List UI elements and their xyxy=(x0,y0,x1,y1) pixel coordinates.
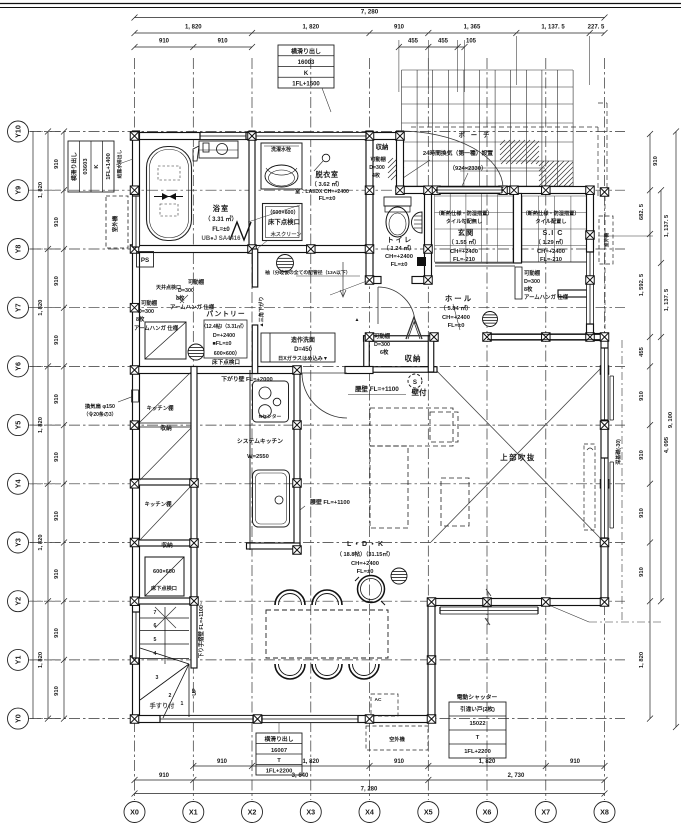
svg-text:壁付: 壁付 xyxy=(412,387,427,397)
svg-text:空外機: 空外機 xyxy=(389,735,405,743)
svg-text:日Xガラスはめ込み▼: 日Xガラスはめ込み▼ xyxy=(278,354,328,362)
svg-text:Y1: Y1 xyxy=(14,656,23,665)
svg-text:5: 5 xyxy=(154,637,157,643)
svg-text:7, 280: 7, 280 xyxy=(361,9,379,16)
svg-text:AC: AC xyxy=(375,697,382,703)
svg-text:キッチン棚: キッチン棚 xyxy=(145,500,173,508)
svg-text:造作洗面: 造作洗面 xyxy=(291,336,315,344)
svg-text:16007: 16007 xyxy=(271,748,287,754)
svg-text:Y7: Y7 xyxy=(14,303,23,312)
svg-text:X3: X3 xyxy=(306,808,315,817)
svg-text:1, 820: 1, 820 xyxy=(639,652,645,668)
svg-text:（924×2330）: （924×2330） xyxy=(449,164,487,172)
svg-text:（ 5.84 ㎡）: （ 5.84 ㎡） xyxy=(440,304,472,312)
svg-text:脱衣室: 脱衣室 xyxy=(315,170,338,179)
svg-text:■FL=±0: ■FL=±0 xyxy=(213,341,232,347)
svg-text:可動棚: 可動棚 xyxy=(524,269,541,277)
svg-text:1: 1 xyxy=(181,701,184,707)
svg-text:収納: 収納 xyxy=(161,541,173,549)
svg-text:電動シャッター: 電動シャッター xyxy=(457,693,498,701)
svg-text:FL=±0: FL=±0 xyxy=(448,323,465,329)
svg-text:天井点検口: 天井点検口 xyxy=(156,284,181,291)
svg-text:Y6: Y6 xyxy=(14,362,23,371)
svg-text:910: 910 xyxy=(54,217,60,227)
svg-text:1FL+1500: 1FL+1500 xyxy=(292,82,320,88)
svg-text:X1: X1 xyxy=(189,808,198,817)
svg-text:8枚: 8枚 xyxy=(136,315,145,323)
svg-text:アームハンガ 仕様: アームハンガ 仕様 xyxy=(134,324,179,332)
svg-text:910: 910 xyxy=(394,759,405,765)
svg-text:腰壁 FL=+1100: 腰壁 FL=+1100 xyxy=(309,498,350,506)
svg-text:収納: 収納 xyxy=(160,424,172,432)
svg-text:910: 910 xyxy=(639,391,645,401)
svg-text:910: 910 xyxy=(54,686,60,696)
svg-text:1FL+2200: 1FL+2200 xyxy=(464,749,491,755)
svg-text:Y10: Y10 xyxy=(14,125,23,138)
svg-text:床下点検口: 床下点検口 xyxy=(151,584,177,592)
svg-text:910: 910 xyxy=(54,511,60,521)
svg-text:910: 910 xyxy=(54,335,60,345)
svg-text:L ・ D ・ K: L ・ D ・ K xyxy=(347,541,383,548)
svg-text:1, 820: 1, 820 xyxy=(302,759,319,765)
svg-text:910: 910 xyxy=(54,628,60,638)
svg-text:910: 910 xyxy=(159,39,170,45)
svg-text:ホ ー ル: ホ ー ル xyxy=(445,294,472,303)
svg-text:横滑り出し: 横滑り出し xyxy=(70,152,78,181)
svg-text:Y5: Y5 xyxy=(14,421,23,430)
svg-text:X4: X4 xyxy=(365,808,374,817)
svg-text:Y4: Y4 xyxy=(14,479,23,488)
svg-text:910: 910 xyxy=(54,159,60,169)
svg-text:910: 910 xyxy=(54,569,60,579)
svg-text:2, 730: 2, 730 xyxy=(508,773,525,779)
svg-text:（断熱仕様・防湿措置）: （断熱仕様・防湿措置） xyxy=(522,209,579,217)
svg-text:7, 280: 7, 280 xyxy=(361,787,378,793)
svg-text:910: 910 xyxy=(218,39,229,45)
svg-text:X5: X5 xyxy=(424,808,433,817)
svg-text:CH=+2400: CH=+2400 xyxy=(351,561,379,567)
svg-text:455: 455 xyxy=(438,39,449,45)
svg-text:24時間換気（第一種）設置: 24時間換気（第一種）設置 xyxy=(423,149,493,157)
svg-text:手すり付: 手すり付 xyxy=(150,702,176,710)
svg-text:910: 910 xyxy=(394,25,405,31)
svg-text:6枚: 6枚 xyxy=(380,348,389,356)
svg-text:K: K xyxy=(304,71,309,77)
svg-text:1, 592. 5: 1, 592. 5 xyxy=(639,273,645,296)
svg-text:8枚: 8枚 xyxy=(524,285,533,293)
svg-text:910: 910 xyxy=(639,508,645,518)
svg-text:収納: 収納 xyxy=(376,142,389,151)
svg-text:X7: X7 xyxy=(541,808,550,817)
svg-text:D=+2400: D=+2400 xyxy=(213,333,235,339)
svg-text:D=300: D=300 xyxy=(374,342,390,348)
svg-text:袖（分岐後の全ての配管径（13A以下）: 袖（分岐後の全ての配管径（13A以下） xyxy=(264,269,351,276)
svg-text:横滑り出し: 横滑り出し xyxy=(265,735,294,743)
svg-text:可動棚: 可動棚 xyxy=(141,299,158,307)
svg-text:X2: X2 xyxy=(248,808,257,817)
svg-text:アームハンガ 仕様: アームハンガ 仕様 xyxy=(524,293,569,301)
svg-text:15022: 15022 xyxy=(469,721,485,727)
svg-text:16003: 16003 xyxy=(298,60,315,66)
svg-text:（ 1.29 ㎡）: （ 1.29 ㎡） xyxy=(535,238,567,246)
svg-text:室∶LAI/DX CH=+2400: 室∶LAI/DX CH=+2400 xyxy=(295,187,349,195)
svg-text:床下点検口: 床下点検口 xyxy=(268,217,300,226)
svg-text:Y3: Y3 xyxy=(14,538,23,547)
svg-text:910: 910 xyxy=(54,394,60,404)
svg-text:ト イ レ: ト イ レ xyxy=(387,236,411,244)
svg-text:上部吹抜: 上部吹抜 xyxy=(500,453,536,462)
svg-text:（ 1.24 ㎡）: （ 1.24 ㎡） xyxy=(383,244,415,252)
svg-text:9, 100: 9, 100 xyxy=(668,412,674,428)
svg-text:下がり壁 FL=+2000: 下がり壁 FL=+2000 xyxy=(221,375,273,383)
svg-text:7: 7 xyxy=(154,610,157,616)
svg-text:UB●J SA4416: UB●J SA4416 xyxy=(202,236,242,242)
svg-text:FL=-210: FL=-210 xyxy=(540,257,562,263)
svg-text:03603: 03603 xyxy=(83,158,89,175)
svg-text:910: 910 xyxy=(570,759,581,765)
svg-text:（ 18.8帖）（31.15㎡）: （ 18.8帖）（31.15㎡） xyxy=(336,550,393,558)
svg-text:Y9: Y9 xyxy=(14,186,23,195)
svg-text:910: 910 xyxy=(653,156,659,166)
svg-text:1, 137. 5: 1, 137. 5 xyxy=(541,25,565,31)
svg-text:室外機: 室外機 xyxy=(603,233,610,248)
svg-text:2: 2 xyxy=(169,693,172,699)
svg-text:（12.4帖/（3.31㎡）: （12.4帖/（3.31㎡） xyxy=(201,323,247,330)
svg-text:600×600）: 600×600） xyxy=(214,349,241,357)
svg-text:アームハンガ 仕様: アームハンガ 仕様 xyxy=(170,303,215,311)
svg-text:▲: ▲ xyxy=(355,317,360,323)
svg-text:可動棚: 可動棚 xyxy=(370,155,386,163)
svg-text:収納: 収納 xyxy=(405,353,422,363)
svg-text:システムキッチン: システムキッチン xyxy=(237,438,283,445)
svg-text:横滑り出し: 横滑り出し xyxy=(291,48,321,56)
svg-text:下り手摺壁 FL=+1100~: 下り手摺壁 FL=+1100~ xyxy=(197,602,205,658)
svg-text:682. 5: 682. 5 xyxy=(639,203,645,220)
svg-text:玄関: 玄関 xyxy=(458,228,474,237)
svg-text:FL=±0: FL=±0 xyxy=(319,196,336,202)
svg-text:Y0: Y0 xyxy=(14,714,23,723)
svg-text:（ 3.62 ㎡）: （ 3.62 ㎡） xyxy=(311,180,343,188)
svg-text:910: 910 xyxy=(159,773,170,779)
svg-text:浴室: 浴室 xyxy=(213,204,229,213)
svg-text:X6: X6 xyxy=(483,808,492,817)
svg-text:6: 6 xyxy=(154,623,157,629)
svg-text:腰壁 FL=+1100: 腰壁 FL=+1100 xyxy=(354,384,399,393)
svg-text:CH=+2400: CH=+2400 xyxy=(385,254,413,260)
svg-text:227. 5: 227. 5 xyxy=(588,25,605,31)
svg-text:引違い戸(2枚): 引違い戸(2枚) xyxy=(460,705,495,713)
svg-text:キッチン棚: キッチン棚 xyxy=(147,404,175,412)
svg-text:1, 365: 1, 365 xyxy=(464,25,481,31)
svg-text:T: T xyxy=(476,735,480,741)
svg-text:910: 910 xyxy=(217,759,228,765)
svg-text:（600×600）: （600×600） xyxy=(267,208,299,216)
svg-text:8枚: 8枚 xyxy=(176,294,185,302)
svg-text:FL=±0: FL=±0 xyxy=(391,262,408,268)
svg-text:1FL+1400: 1FL+1400 xyxy=(106,153,112,180)
svg-text:600×600: 600×600 xyxy=(153,569,175,575)
svg-text:1, 820: 1, 820 xyxy=(185,25,202,31)
svg-text:（令20条の3）: （令20条の3） xyxy=(83,411,116,418)
svg-text:S.I C: S.I C xyxy=(543,228,564,237)
svg-text:455: 455 xyxy=(408,39,419,45)
svg-text:換気扇 φ150: 換気扇 φ150 xyxy=(85,402,115,410)
svg-text:3: 3 xyxy=(156,675,159,681)
svg-text:可動棚: 可動棚 xyxy=(188,278,205,286)
svg-text:D=300: D=300 xyxy=(369,165,385,171)
svg-text:4枚: 4枚 xyxy=(372,171,381,179)
svg-text:▲三角下がり: ▲三角下がり xyxy=(257,296,265,327)
svg-text:CH=+2400: CH=+2400 xyxy=(537,249,565,255)
svg-text:X0: X0 xyxy=(130,808,139,817)
svg-text:D=300: D=300 xyxy=(524,279,540,285)
svg-text:床下点検口: 床下点検口 xyxy=(212,358,240,366)
svg-text:木スクリーン: 木スクリーン xyxy=(270,230,302,238)
svg-text:1, 137. 5: 1, 137. 5 xyxy=(664,288,670,311)
svg-text:1FL+2200: 1FL+2200 xyxy=(266,769,293,775)
svg-text:Y2: Y2 xyxy=(14,597,23,606)
svg-text:455: 455 xyxy=(639,346,645,356)
svg-text:FL=-210: FL=-210 xyxy=(453,257,475,263)
svg-text:1, 137. 5: 1, 137. 5 xyxy=(664,214,670,237)
svg-text:Nセンター: Nセンター xyxy=(259,413,282,420)
svg-text:CH=+2400: CH=+2400 xyxy=(450,249,478,255)
svg-text:910: 910 xyxy=(54,452,60,462)
svg-text:FL=±0: FL=±0 xyxy=(212,227,230,233)
svg-text:UP: UP xyxy=(192,688,198,696)
svg-text:3, 640: 3, 640 xyxy=(292,773,309,779)
svg-text:（ 3.31 ㎡）: （ 3.31 ㎡） xyxy=(204,215,237,223)
svg-text:1, 820: 1, 820 xyxy=(479,759,496,765)
svg-text:D=450: D=450 xyxy=(294,347,313,353)
svg-text:T: T xyxy=(277,758,281,764)
svg-text:洗濯水栓: 洗濯水栓 xyxy=(271,146,291,153)
svg-text:4, 095: 4, 095 xyxy=(664,436,670,453)
svg-text:（断熱仕様・防湿措置）: （断熱仕様・防湿措置） xyxy=(435,209,492,217)
svg-text:105: 105 xyxy=(466,39,477,45)
svg-text:X8: X8 xyxy=(600,808,609,817)
svg-text:室外機: 室外機 xyxy=(111,215,119,232)
svg-text:S: S xyxy=(413,379,417,386)
svg-text:D=300: D=300 xyxy=(138,309,154,315)
svg-text:910: 910 xyxy=(54,276,60,286)
svg-text:FL=±0: FL=±0 xyxy=(357,569,374,575)
svg-text:可動棚: 可動棚 xyxy=(374,332,391,340)
svg-text:Y8: Y8 xyxy=(14,245,23,254)
svg-text:910: 910 xyxy=(639,450,645,460)
svg-text:（ 1.55 ㎡）: （ 1.55 ㎡） xyxy=(448,238,480,246)
svg-text:910: 910 xyxy=(639,567,645,577)
svg-text:PS: PS xyxy=(141,257,149,264)
svg-text:タイル配置し: タイル配置し xyxy=(535,217,566,225)
svg-text:4: 4 xyxy=(154,651,157,657)
svg-text:タイル勾配無し: タイル勾配無し xyxy=(446,217,482,225)
svg-text:深基礎(-30): 深基礎(-30) xyxy=(615,439,622,465)
svg-text:ポ ー チ: ポ ー チ xyxy=(459,130,492,139)
svg-text:1, 820: 1, 820 xyxy=(302,25,319,31)
